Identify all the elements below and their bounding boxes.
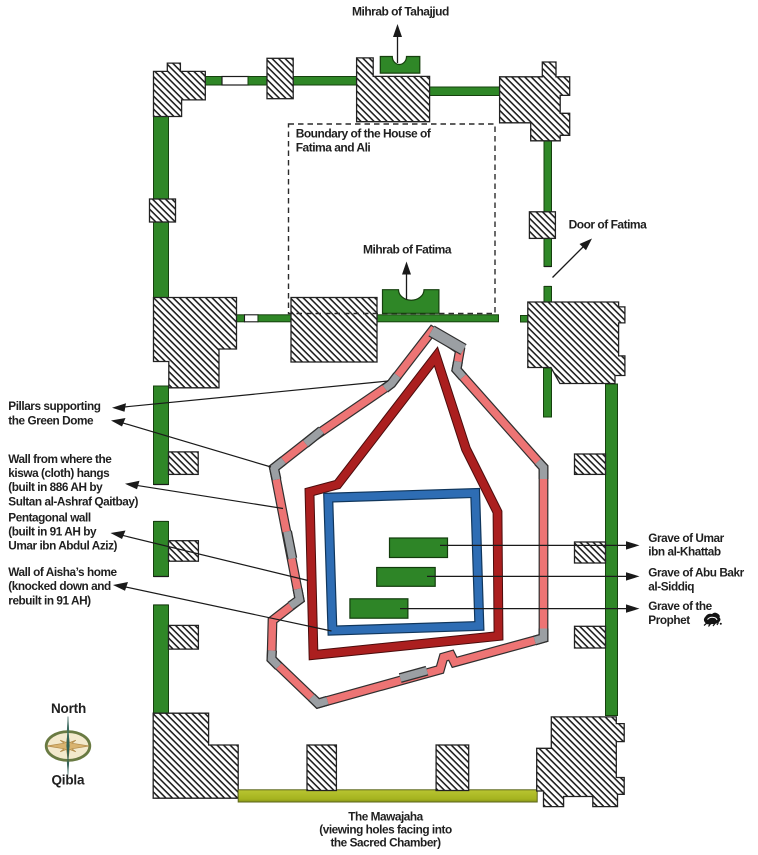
svg-text:Mihrab of Fatima: Mihrab of Fatima [363, 243, 452, 257]
svg-text:ibn al-Khattab: ibn al-Khattab [648, 545, 721, 559]
svg-text:Prophet: Prophet [648, 613, 690, 627]
svg-text:(knocked down and: (knocked down and [8, 579, 111, 593]
svg-text:(viewing holes facing into: (viewing holes facing into [319, 823, 452, 837]
svg-text:(built in 91 AH by: (built in 91 AH by [8, 525, 97, 539]
svg-text:Pentagonal wall: Pentagonal wall [8, 511, 91, 525]
svg-text:Wall from where the: Wall from where the [8, 452, 112, 466]
svg-text:The Mawajaha: The Mawajaha [348, 810, 423, 824]
svg-text:(built in 886 AH by: (built in 886 AH by [8, 480, 103, 494]
svg-text:Sultan al-Ashraf Qaitbay): Sultan al-Ashraf Qaitbay) [8, 494, 138, 508]
svg-text:the Sacred Chamber): the Sacred Chamber) [330, 836, 441, 850]
svg-text:Qibla: Qibla [52, 773, 85, 788]
svg-text:rebuilt in 91 AH): rebuilt in 91 AH) [8, 593, 91, 607]
svg-text:Grave of Umar: Grave of Umar [648, 531, 724, 545]
svg-text:Door of Fatima: Door of Fatima [569, 218, 647, 232]
svg-text:Grave of Abu Bakr: Grave of Abu Bakr [648, 565, 744, 579]
svg-text:North: North [51, 701, 86, 716]
svg-text:Grave of the: Grave of the [648, 599, 712, 613]
svg-text:al-Siddiq: al-Siddiq [648, 579, 694, 593]
svg-text:Pillars supporting: Pillars supporting [8, 399, 100, 413]
svg-text:Fatima and Ali: Fatima and Ali [296, 141, 371, 155]
svg-text:kiswa (cloth) hangs: kiswa (cloth) hangs [8, 466, 110, 480]
svg-text:Wall of Aisha’s home: Wall of Aisha’s home [8, 565, 117, 579]
svg-text:Mihrab of Tahajjud: Mihrab of Tahajjud [352, 5, 449, 19]
svg-text:the Green Dome: the Green Dome [8, 413, 94, 427]
svg-text:Umar ibn Abdul Aziz): Umar ibn Abdul Aziz) [8, 539, 117, 553]
svg-text:Boundary of the House of: Boundary of the House of [296, 127, 432, 141]
